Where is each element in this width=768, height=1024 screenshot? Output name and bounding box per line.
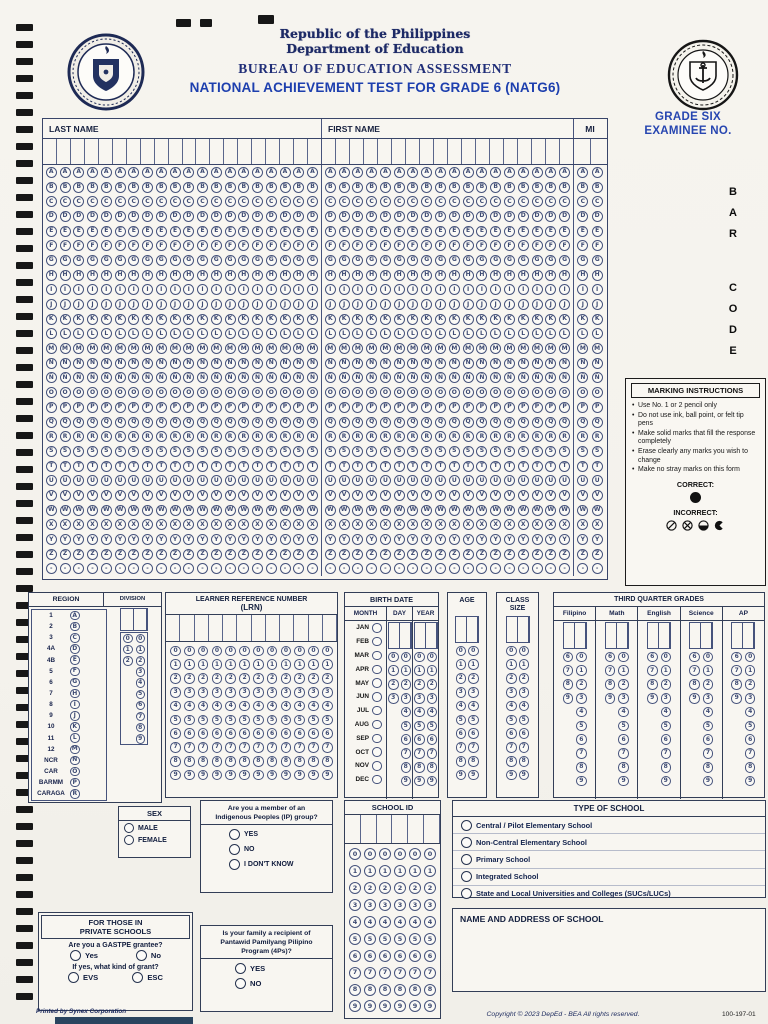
bubble-V[interactable]: V [366,490,377,501]
bubble-M[interactable]: M [293,343,304,354]
bubble-N[interactable]: N [490,358,501,369]
bubble-Y[interactable]: Y [156,534,167,545]
bubble-L[interactable]: L [46,328,57,339]
option-no[interactable]: No [136,950,161,961]
bubble-K[interactable]: K [60,314,71,325]
bubble-X[interactable]: X [407,519,418,530]
bubble-L[interactable]: L [197,328,208,339]
bubble-A[interactable]: A [476,167,487,178]
bubble-W[interactable]: W [532,505,543,516]
bubble-Z[interactable]: Z [421,549,432,560]
bubble-I[interactable]: I [407,284,418,295]
bubble-I[interactable]: I [490,284,501,295]
bubble-D[interactable]: D [559,211,570,222]
bubble-Y[interactable]: Y [463,534,474,545]
bubble-T[interactable]: T [421,461,432,472]
bubble-8[interactable]: 8 [618,762,629,773]
bubble-C[interactable]: C [352,196,363,207]
bubble-N[interactable]: N [70,756,80,766]
bubble-E[interactable]: E [128,226,139,237]
bubble-D[interactable]: D [211,211,222,222]
bubble-A[interactable]: A [70,611,80,621]
bubble-N[interactable]: N [592,358,603,369]
bubble-V[interactable]: V [73,490,84,501]
bubble-J[interactable]: J [183,299,194,310]
bubble-J[interactable]: J [407,299,418,310]
bubble-8[interactable]: 8 [414,762,425,773]
bubble--[interactable]: - [339,563,350,574]
bubble-9[interactable]: 9 [563,693,574,704]
bubble-1[interactable]: 1 [225,659,236,670]
writein-cell[interactable] [238,139,252,164]
bubble-F[interactable]: F [407,240,418,251]
bubble-T[interactable]: T [156,461,167,472]
bubble-2[interactable]: 2 [401,679,412,690]
bubble-E[interactable]: E [435,226,446,237]
bubble-V[interactable]: V [352,490,363,501]
bubble-C[interactable]: C [197,196,208,207]
bubble-2[interactable]: 2 [379,882,391,894]
bubble-X[interactable]: X [476,519,487,530]
bubble-A[interactable]: A [293,167,304,178]
bubble-N[interactable]: N [101,358,112,369]
bubble-Z[interactable]: Z [73,549,84,560]
bubble-P[interactable]: P [266,402,277,413]
bubble-M[interactable]: M [225,343,236,354]
bubble-H[interactable]: H [170,270,181,281]
bubble-Z[interactable]: Z [490,549,501,560]
bubble-B[interactable]: B [115,182,126,193]
option-circle[interactable] [461,888,472,899]
bubble-7[interactable]: 7 [379,967,391,979]
bubble-6[interactable]: 6 [379,950,391,962]
bubble-Ñ[interactable]: Ñ [238,372,249,383]
bubble-C[interactable]: C [394,196,405,207]
bubble-Q[interactable]: Q [156,417,167,428]
bubble-J[interactable]: J [421,299,432,310]
bubble-H[interactable]: H [197,270,208,281]
bubble-E[interactable]: E [380,226,391,237]
bubble-M[interactable]: M [463,343,474,354]
bubble-1[interactable]: 1 [618,665,629,676]
bubble-E[interactable]: E [87,226,98,237]
bubble-T[interactable]: T [60,461,71,472]
bubble-Ñ[interactable]: Ñ [545,372,556,383]
bubble-S[interactable]: S [449,446,460,457]
bubble-I[interactable]: I [449,284,460,295]
bubble-G[interactable]: G [545,255,556,266]
writein-cell[interactable] [400,623,411,648]
bubble-O[interactable]: O [366,387,377,398]
bubble-H[interactable]: H [115,270,126,281]
bubble-G[interactable]: G [101,255,112,266]
bubble-F[interactable]: F [307,240,318,251]
bubble-S[interactable]: S [577,446,588,457]
writein-cell[interactable] [546,139,560,164]
bubble-L[interactable]: L [476,328,487,339]
bubble-C[interactable]: C [435,196,446,207]
bubble-2[interactable]: 2 [136,656,146,666]
bubble-D[interactable]: D [252,211,263,222]
bubble-F[interactable]: F [394,240,405,251]
bubble-D[interactable]: D [532,211,543,222]
bubble-5[interactable]: 5 [322,715,333,726]
bubble-H[interactable]: H [211,270,222,281]
bubble-5[interactable]: 5 [349,933,361,945]
bubble-Y[interactable]: Y [532,534,543,545]
bubble-N[interactable]: N [252,358,263,369]
bubble-E[interactable]: E [266,226,277,237]
bubble-S[interactable]: S [518,446,529,457]
bubble-S[interactable]: S [128,446,139,457]
bubble-Ñ[interactable]: Ñ [577,372,588,383]
bubble-P[interactable]: P [156,402,167,413]
writein-cell[interactable] [309,615,323,641]
bubble-R[interactable]: R [449,431,460,442]
bubble-N[interactable]: N [183,358,194,369]
bubble-5[interactable]: 5 [170,715,181,726]
bubble-9[interactable]: 9 [136,734,146,744]
bubble-S[interactable]: S [325,446,336,457]
bubble-Ñ[interactable]: Ñ [60,372,71,383]
bubble-C[interactable]: C [366,196,377,207]
bubble-M[interactable]: M [449,343,460,354]
bubble-H[interactable]: H [504,270,515,281]
option-yes[interactable]: Yes [70,950,98,961]
writein-cell[interactable] [141,139,155,164]
bubble-N[interactable]: N [128,358,139,369]
bubble-5[interactable]: 5 [267,715,278,726]
bubble-V[interactable]: V [504,490,515,501]
option-no[interactable]: NO [229,842,332,855]
option-primary-school[interactable]: Primary School [453,851,765,868]
bubble-N[interactable]: N [339,358,350,369]
option-circle[interactable] [124,823,134,833]
bubble-3[interactable]: 3 [294,687,305,698]
bubble-T[interactable]: T [307,461,318,472]
bubble-D[interactable]: D [46,211,57,222]
bubble-L[interactable]: L [325,328,336,339]
bubble-T[interactable]: T [115,461,126,472]
bubble-J[interactable]: J [352,299,363,310]
bubble-H[interactable]: H [142,270,153,281]
writein-cell[interactable] [448,139,462,164]
bubble-6[interactable]: 6 [563,652,574,663]
bubble-2[interactable]: 2 [427,679,438,690]
bubble-H[interactable]: H [307,270,318,281]
bubble-Y[interactable]: Y [504,534,515,545]
bubble-U[interactable]: U [156,475,167,486]
bubble-D[interactable]: D [366,211,377,222]
bubble-M[interactable]: M [183,343,194,354]
bubble-J[interactable]: J [156,299,167,310]
bubble-G[interactable]: G [421,255,432,266]
bubble-K[interactable]: K [238,314,249,325]
bubble-Y[interactable]: Y [476,534,487,545]
bubble-8[interactable]: 8 [379,984,391,996]
bubble-C[interactable]: C [252,196,263,207]
bubble-E[interactable]: E [339,226,350,237]
bubble-P[interactable]: P [518,402,529,413]
bubble-G[interactable]: G [280,255,291,266]
bubble-D[interactable]: D [476,211,487,222]
bubble-8[interactable]: 8 [605,679,616,690]
bubble-Ñ[interactable]: Ñ [435,372,446,383]
bubble-6[interactable]: 6 [409,950,421,962]
bubble-O[interactable]: O [197,387,208,398]
bubble-7[interactable]: 7 [703,748,714,759]
bubble-G[interactable]: G [592,255,603,266]
bubble-Y[interactable]: Y [101,534,112,545]
bubble-9[interactable]: 9 [281,770,292,781]
bubble-Q[interactable]: Q [449,417,460,428]
bubble-U[interactable]: U [142,475,153,486]
bubble-Y[interactable]: Y [325,534,336,545]
bubble-2[interactable]: 2 [424,882,436,894]
bubble-R[interactable]: R [197,431,208,442]
bubble-Y[interactable]: Y [407,534,418,545]
writein-cell[interactable] [701,623,712,648]
bubble-H[interactable]: H [183,270,194,281]
bubble-8[interactable]: 8 [424,984,436,996]
bubble-U[interactable]: U [266,475,277,486]
bubble-U[interactable]: U [518,475,529,486]
bubble-4[interactable]: 4 [519,701,530,712]
bubble-F[interactable]: F [380,240,391,251]
bubble-B[interactable]: B [490,182,501,193]
bubble-X[interactable]: X [545,519,556,530]
bubble-T[interactable]: T [325,461,336,472]
bubble-O[interactable]: O [407,387,418,398]
bubble-D[interactable]: D [449,211,460,222]
bubble-N[interactable]: N [394,358,405,369]
bubble-6[interactable]: 6 [519,728,530,739]
bubble-7[interactable]: 7 [267,742,278,753]
writein-cell[interactable] [99,139,113,164]
bubble-Y[interactable]: Y [559,534,570,545]
bubble-E[interactable]: E [307,226,318,237]
writein-cell[interactable] [392,815,408,843]
bubble-P[interactable]: P [559,402,570,413]
bubble--[interactable]: - [577,563,588,574]
bubble-I[interactable]: I [238,284,249,295]
bubble-8[interactable]: 8 [294,756,305,767]
bubble-U[interactable]: U [87,475,98,486]
bubble-H[interactable]: H [476,270,487,281]
bubble-E[interactable]: E [211,226,222,237]
bubble-3[interactable]: 3 [414,693,425,704]
bubble-D[interactable]: D [197,211,208,222]
bubble--[interactable]: - [435,563,446,574]
bubble-O[interactable]: O [577,387,588,398]
bubble-W[interactable]: W [307,505,318,516]
bubble-J[interactable]: J [394,299,405,310]
bubble-X[interactable]: X [592,519,603,530]
bubble-E[interactable]: E [394,226,405,237]
bubble-4[interactable]: 4 [468,701,479,712]
bubble-C[interactable]: C [266,196,277,207]
bubble-G[interactable]: G [435,255,446,266]
bubble-V[interactable]: V [280,490,291,501]
bubble-Ñ[interactable]: Ñ [115,372,126,383]
bubble-blank[interactable] [372,665,382,675]
bubble-9[interactable]: 9 [225,770,236,781]
bubble-8[interactable]: 8 [267,756,278,767]
writein-cell[interactable] [266,615,280,641]
bubble-7[interactable]: 7 [689,665,700,676]
bubble-3[interactable]: 3 [267,687,278,698]
bubble-1[interactable]: 1 [349,865,361,877]
bubble-9[interactable]: 9 [506,770,517,781]
bubble-J[interactable]: J [128,299,139,310]
bubble-5[interactable]: 5 [409,933,421,945]
bubble-4[interactable]: 4 [253,701,264,712]
bubble-D[interactable]: D [101,211,112,222]
bubble-H[interactable]: H [339,270,350,281]
bubble-Ñ[interactable]: Ñ [380,372,391,383]
bubble-5[interactable]: 5 [401,721,412,732]
bubble-4[interactable]: 4 [427,707,438,718]
bubble-J[interactable]: J [325,299,336,310]
bubble-N[interactable]: N [60,358,71,369]
writein-cell[interactable] [323,615,337,641]
bubble-J[interactable]: J [211,299,222,310]
bubble-7[interactable]: 7 [519,742,530,753]
bubble-L[interactable]: L [156,328,167,339]
bubble-5[interactable]: 5 [576,721,587,732]
bubble-9[interactable]: 9 [294,770,305,781]
bubble-7[interactable]: 7 [576,748,587,759]
bubble-A[interactable]: A [142,167,153,178]
bubble-3[interactable]: 3 [506,687,517,698]
bubble-Q[interactable]: Q [366,417,377,428]
bubble-K[interactable]: K [293,314,304,325]
bubble-Y[interactable]: Y [60,534,71,545]
writein-cell[interactable] [426,623,437,648]
bubble-9[interactable]: 9 [401,776,412,787]
bubble-U[interactable]: U [504,475,515,486]
bubble-T[interactable]: T [559,461,570,472]
bubble--[interactable]: - [476,563,487,574]
bubble-R[interactable]: R [463,431,474,442]
bubble-K[interactable]: K [421,314,432,325]
bubble-Ñ[interactable]: Ñ [490,372,501,383]
bubble-1[interactable]: 1 [198,659,209,670]
bubble-X[interactable]: X [280,519,291,530]
bubble-O[interactable]: O [339,387,350,398]
bubble-0[interactable]: 0 [468,646,479,657]
writein-cell[interactable] [420,139,434,164]
bubble-V[interactable]: V [197,490,208,501]
bubble-2[interactable]: 2 [281,673,292,684]
bubble-J[interactable]: J [280,299,291,310]
bubble-7[interactable]: 7 [281,742,292,753]
bubble-4[interactable]: 4 [618,707,629,718]
bubble-J[interactable]: J [592,299,603,310]
bubble-G[interactable]: G [504,255,515,266]
bubble-S[interactable]: S [238,446,249,457]
bubble-K[interactable]: K [197,314,208,325]
bubble-E[interactable]: E [559,226,570,237]
bubble-E[interactable]: E [170,226,181,237]
writein-cell[interactable] [606,623,617,648]
bubble-H[interactable]: H [156,270,167,281]
bubble-I[interactable]: I [70,700,80,710]
bubble--[interactable]: - [545,563,556,574]
bubble-1[interactable]: 1 [414,665,425,676]
bubble-N[interactable]: N [211,358,222,369]
bubble-I[interactable]: I [183,284,194,295]
writein-cell[interactable] [155,139,169,164]
bubble-P[interactable]: P [366,402,377,413]
bubble-P[interactable]: P [407,402,418,413]
bubble-M[interactable]: M [559,343,570,354]
bubble-R[interactable]: R [532,431,543,442]
bubble-U[interactable]: U [476,475,487,486]
bubble-D[interactable]: D [394,211,405,222]
bubble-1[interactable]: 1 [267,659,278,670]
bubble-9[interactable]: 9 [689,693,700,704]
bubble-C[interactable]: C [490,196,501,207]
bubble-3[interactable]: 3 [136,667,146,677]
bubble-E[interactable]: E [463,226,474,237]
bubble-K[interactable]: K [280,314,291,325]
bubble-3[interactable]: 3 [170,687,181,698]
bubble-8[interactable]: 8 [506,756,517,767]
bubble-V[interactable]: V [252,490,263,501]
bubble--[interactable]: - [421,563,432,574]
writein-cell[interactable] [85,139,99,164]
bubble-O[interactable]: O [380,387,391,398]
bubble-0[interactable]: 0 [661,652,672,663]
bubble-E[interactable]: E [280,226,291,237]
writein-cell[interactable] [224,139,238,164]
option-evs[interactable]: EVS [68,972,98,983]
bubble-4[interactable]: 4 [364,916,376,928]
bubble-W[interactable]: W [449,505,460,516]
bubble-L[interactable]: L [504,328,515,339]
bubble-A[interactable]: A [463,167,474,178]
bubble-N[interactable]: N [170,358,181,369]
writein-cell[interactable] [361,815,377,843]
bubble-G[interactable]: G [211,255,222,266]
bubble-8[interactable]: 8 [661,762,672,773]
bubble-4[interactable]: 4 [281,701,292,712]
bubble-8[interactable]: 8 [456,756,467,767]
bubble-A[interactable]: A [115,167,126,178]
bubble-9[interactable]: 9 [198,770,209,781]
bubble-N[interactable]: N [545,358,556,369]
bubble-G[interactable]: G [394,255,405,266]
bubble-N[interactable]: N [115,358,126,369]
bubble-T[interactable]: T [592,461,603,472]
writein-cell[interactable] [71,139,85,164]
option-non-central-elementary-school[interactable]: Non-Central Elementary School [453,834,765,851]
writein-cell[interactable] [252,139,266,164]
writein-cell[interactable] [280,615,294,641]
bubble-Z[interactable]: Z [225,549,236,560]
bubble-C[interactable]: C [380,196,391,207]
bubble-9[interactable]: 9 [364,1000,376,1012]
bubble-6[interactable]: 6 [745,734,756,745]
bubble-F[interactable]: F [211,240,222,251]
bubble-X[interactable]: X [266,519,277,530]
bubble-C[interactable]: C [156,196,167,207]
bubble-F[interactable]: F [280,240,291,251]
writein-cell[interactable] [743,623,754,648]
bubble-Ñ[interactable]: Ñ [252,372,263,383]
bubble-N[interactable]: N [142,358,153,369]
